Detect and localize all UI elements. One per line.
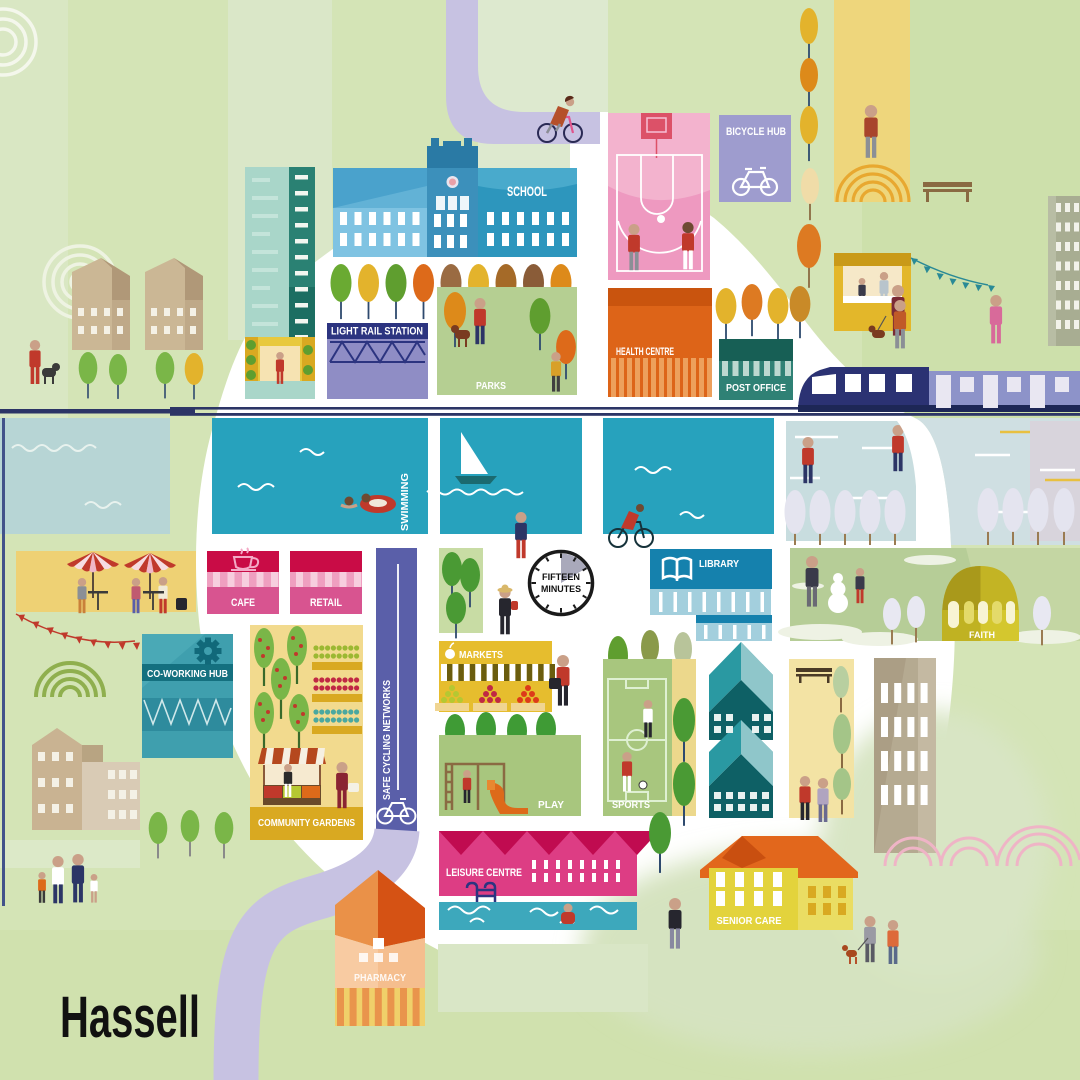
svg-text:COMMUNITY GARDENS: COMMUNITY GARDENS: [258, 817, 355, 829]
svg-text:CAFE: CAFE: [231, 597, 255, 609]
svg-text:MARKETS: MARKETS: [459, 649, 503, 661]
svg-text:SPORTS: SPORTS: [612, 799, 650, 811]
svg-text:PHARMACY: PHARMACY: [354, 972, 406, 984]
svg-text:FIFTEEN: FIFTEEN: [542, 572, 580, 583]
svg-text:LIBRARY: LIBRARY: [699, 558, 739, 570]
svg-text:LIGHT RAIL STATION: LIGHT RAIL STATION: [331, 326, 423, 338]
svg-text:FAITH: FAITH: [969, 630, 995, 641]
svg-text:SCHOOL: SCHOOL: [507, 184, 547, 199]
svg-text:BICYCLE HUB: BICYCLE HUB: [726, 126, 786, 138]
svg-text:SWIMMING: SWIMMING: [400, 473, 411, 531]
svg-text:Hassell: Hassell: [60, 985, 200, 1050]
svg-text:PLAY: PLAY: [538, 799, 564, 811]
svg-text:RETAIL: RETAIL: [310, 597, 342, 609]
svg-text:HEALTH CENTRE: HEALTH CENTRE: [616, 346, 674, 358]
svg-text:CO-WORKING HUB: CO-WORKING HUB: [147, 668, 228, 680]
svg-text:LEISURE CENTRE: LEISURE CENTRE: [446, 867, 522, 879]
svg-text:SAFE CYCLING NETWORKS: SAFE CYCLING NETWORKS: [381, 680, 393, 800]
svg-text:POST OFFICE: POST OFFICE: [726, 382, 786, 394]
svg-text:PARKS: PARKS: [476, 380, 506, 392]
svg-text:MINUTES: MINUTES: [541, 584, 581, 595]
svg-text:SENIOR CARE: SENIOR CARE: [717, 915, 782, 927]
